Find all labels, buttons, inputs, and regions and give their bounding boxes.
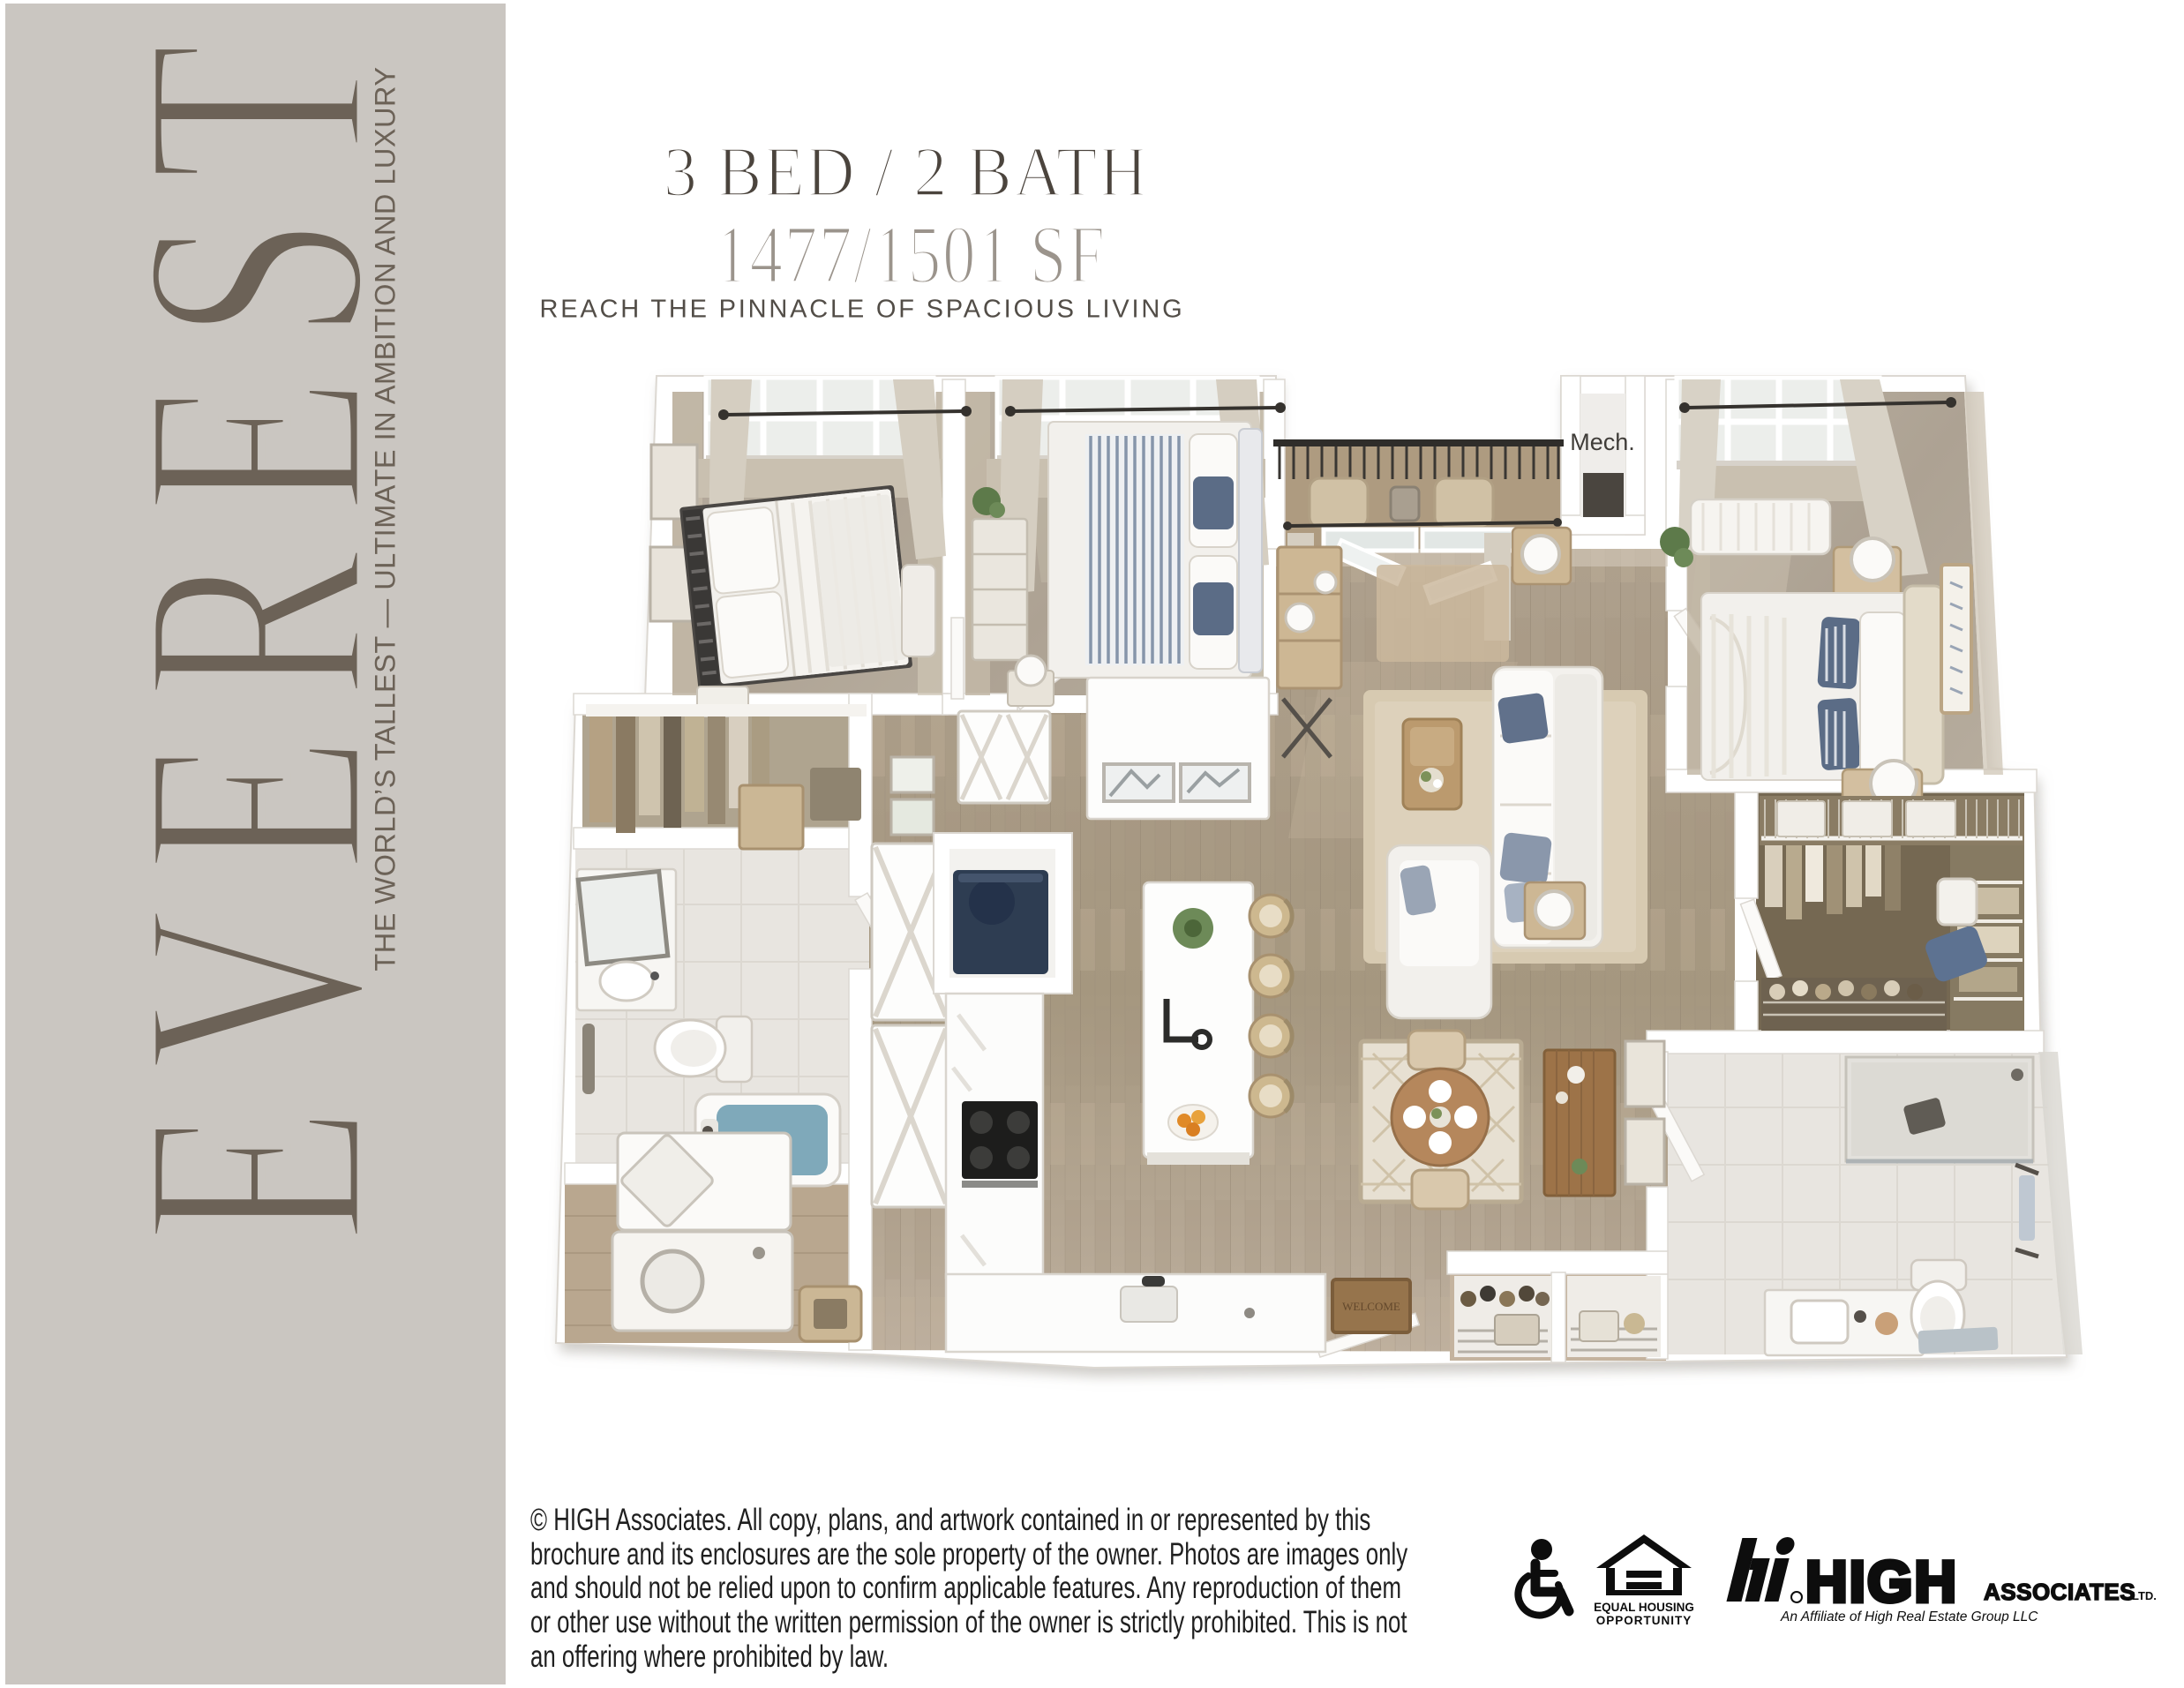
svg-text:An Affiliate of High Real Esta: An Affiliate of High Real Estate Group L… xyxy=(1780,1609,2038,1624)
svg-text:WELCOME: WELCOME xyxy=(1342,1300,1400,1313)
svg-text:HIGH: HIGH xyxy=(1805,1549,1958,1614)
svg-text:OPPORTUNITY: OPPORTUNITY xyxy=(1596,1614,1692,1627)
svg-text:LTD.: LTD. xyxy=(2132,1589,2157,1602)
svg-text:Mech.: Mech. xyxy=(1570,429,1635,455)
svg-text:ASSOCIATES: ASSOCIATES xyxy=(1984,1579,2135,1605)
svg-text:EQUAL HOUSING: EQUAL HOUSING xyxy=(1594,1601,1694,1614)
